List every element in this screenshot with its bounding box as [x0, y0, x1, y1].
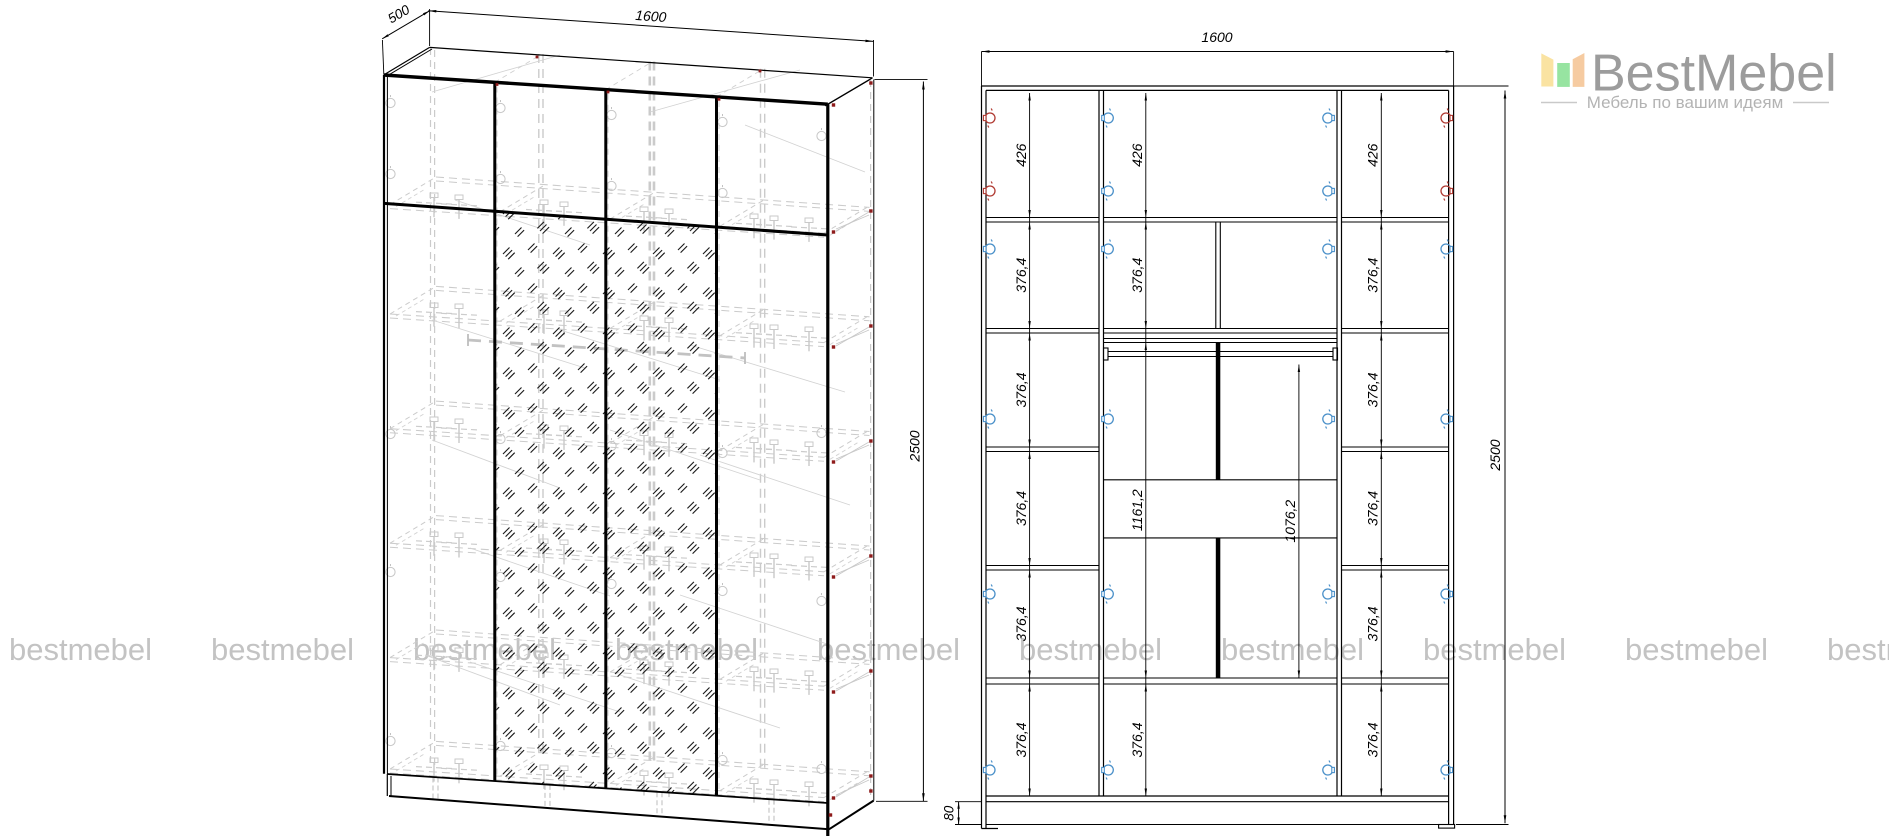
svg-text:80: 80	[942, 805, 957, 821]
svg-text:376,4: 376,4	[1365, 491, 1381, 526]
svg-text:376,4: 376,4	[1013, 722, 1029, 757]
svg-text:376,4: 376,4	[1365, 606, 1381, 641]
svg-text:376,4: 376,4	[1365, 372, 1381, 407]
svg-text:426: 426	[1013, 143, 1029, 167]
svg-text:376,4: 376,4	[1013, 491, 1029, 526]
svg-text:1161,2: 1161,2	[1129, 489, 1145, 531]
svg-text:2500: 2500	[1487, 439, 1503, 471]
svg-text:bestmebel: bestmebel	[1019, 632, 1162, 667]
svg-text:bestmebel: bestmebel	[1221, 632, 1364, 667]
svg-text:376,4: 376,4	[1365, 722, 1381, 757]
svg-text:376,4: 376,4	[1129, 722, 1145, 757]
svg-text:376,4: 376,4	[1013, 606, 1029, 641]
svg-text:426: 426	[1365, 143, 1381, 167]
svg-text:2500: 2500	[907, 430, 923, 462]
svg-text:1076,2: 1076,2	[1282, 500, 1298, 543]
svg-text:1600: 1600	[1201, 29, 1232, 45]
svg-text:426: 426	[1129, 143, 1145, 167]
svg-text:bestmebel: bestmebel	[1827, 632, 1889, 667]
svg-text:376,4: 376,4	[1365, 257, 1381, 292]
svg-text:1600: 1600	[635, 7, 667, 25]
svg-text:bestmebel: bestmebel	[1625, 632, 1768, 667]
svg-text:Мебель по вашим идеям: Мебель по вашим идеям	[1587, 93, 1784, 112]
svg-text:bestmebel: bestmebel	[1423, 632, 1566, 667]
svg-text:376,4: 376,4	[1013, 257, 1029, 292]
svg-text:376,4: 376,4	[1013, 372, 1029, 407]
svg-text:bestmebel: bestmebel	[211, 632, 354, 667]
svg-text:bestmebel: bestmebel	[9, 632, 152, 667]
svg-text:376,4: 376,4	[1129, 257, 1145, 292]
